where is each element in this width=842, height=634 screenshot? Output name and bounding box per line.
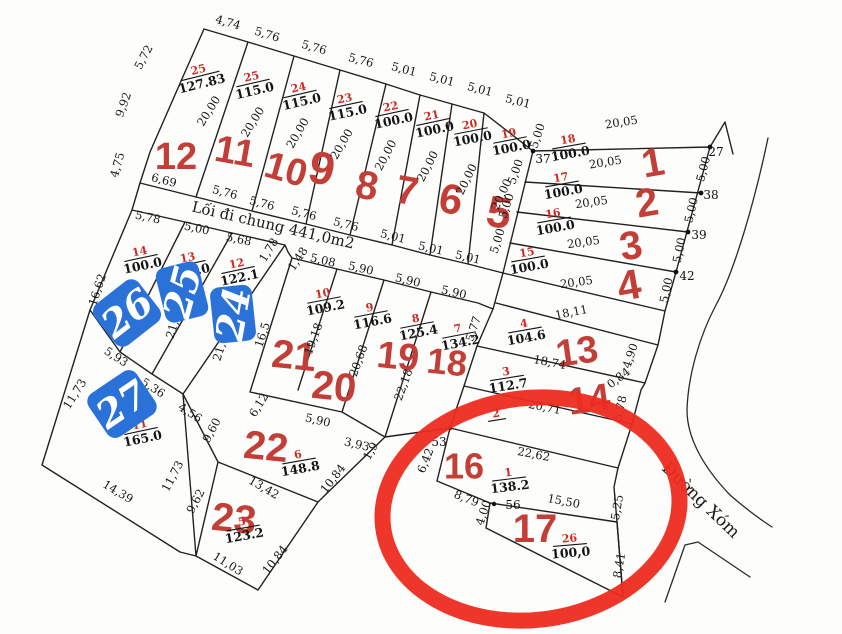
dim-label: 20,05: [604, 113, 639, 132]
dim-label: 5,01: [454, 247, 482, 266]
svg-text:26: 26: [561, 531, 578, 545]
plot-number: 4: [613, 260, 645, 310]
parcel-label: 15100.0: [506, 243, 550, 277]
dim-label: 5,00: [527, 121, 548, 150]
svg-text:100.0: 100.0: [509, 256, 550, 278]
svg-text:116.6: 116.6: [352, 310, 394, 332]
parcel-label: 14100.0: [119, 241, 163, 277]
point-marker: 27: [708, 145, 723, 159]
dim-label: 5,93: [102, 344, 131, 370]
dim-label: 5,08: [309, 250, 337, 269]
dim-label: 5,90: [440, 282, 468, 301]
dim-label: 5,00: [183, 219, 211, 238]
dim-label: 20,00: [414, 148, 441, 184]
point-marker: 39: [691, 228, 706, 242]
parcel-label: 18100.0: [547, 130, 591, 164]
dim-label: 5,90: [347, 258, 375, 277]
parcel-label: 19100.0: [488, 123, 532, 158]
svg-text:138.2: 138.2: [490, 477, 531, 497]
point-marker: 38: [703, 188, 718, 202]
dim-label: 13,42: [246, 473, 282, 502]
dim-label: 1,48: [285, 244, 311, 273]
svg-text:3: 3: [501, 365, 511, 379]
dim-label: 5,78: [134, 208, 162, 227]
svg-text:100.0: 100.0: [414, 118, 456, 141]
dim-label: 14,39: [100, 477, 135, 506]
svg-text:104.6: 104.6: [506, 327, 547, 349]
svg-text:100,0: 100,0: [550, 543, 591, 561]
parcel-label: 10109.2: [302, 284, 346, 319]
dim-label: 4,74: [214, 12, 242, 33]
dim-label: 5,68: [225, 230, 253, 249]
point-marker: 42: [679, 269, 694, 283]
plot-number: 2: [632, 179, 662, 226]
svg-text:6: 6: [293, 447, 303, 461]
plot-number: 17: [513, 507, 558, 551]
parcel-label: 23115.0: [324, 88, 368, 124]
cadastral-map-page: 12 11 10 9 8 7 6 5 1 2 3 4 13 14 16 17 1…: [0, 0, 842, 634]
parcel-label: 24115.0: [278, 77, 323, 113]
dim-label: 9,92: [112, 90, 134, 119]
dim-label: 5,00: [693, 155, 713, 183]
dim-label: 5,90: [304, 410, 332, 429]
svg-text:100.0: 100.0: [452, 127, 494, 149]
dim-label: 4,90: [620, 341, 641, 370]
dim-label: 20,00: [194, 93, 223, 128]
svg-text:115.0: 115.0: [234, 79, 276, 102]
dim-label: 8,41: [610, 551, 628, 579]
dim-label: 20,05: [588, 153, 623, 172]
dim-label: 5,00: [504, 157, 526, 186]
dim-label: 5,01: [390, 59, 418, 79]
survey-dot: [686, 230, 691, 235]
dim-label: 5,01: [428, 69, 456, 89]
parcel-label: 25127.83: [174, 58, 227, 97]
dim-label: 5,76: [300, 37, 328, 58]
parcel-label: 9116.6: [349, 297, 393, 332]
dim-label: 20,00: [238, 104, 267, 139]
dim-label: 5,00: [657, 276, 676, 304]
svg-text:115.0: 115.0: [281, 90, 323, 113]
dim-label: 20,00: [372, 137, 400, 173]
dim-label: 10,84: [259, 542, 290, 577]
svg-text:100.0: 100.0: [535, 217, 576, 239]
dim-label: 20,68: [346, 343, 370, 379]
dim-label: 9,62: [183, 487, 207, 516]
dim-label: 8,79: [452, 487, 481, 510]
svg-text:1: 1: [504, 466, 513, 480]
dim-label: 18,11: [554, 302, 589, 322]
dim-label: 20,05: [566, 233, 601, 251]
dim-label: 9,60: [199, 416, 223, 445]
dim-label: 4,56: [176, 400, 205, 426]
dim-label: 5,00: [681, 196, 700, 224]
dim-label: 5,90: [394, 270, 422, 289]
parcel-label: 12122.1: [216, 253, 260, 289]
plot-number: 16: [444, 446, 484, 487]
point-marker: 37: [535, 152, 550, 166]
parcel-label: 22100.0: [370, 96, 414, 132]
dim-label: 22,62: [516, 444, 551, 464]
dim-label: 5,25: [608, 493, 626, 521]
stamp-number: 24: [206, 284, 260, 345]
dim-label: 5,01: [466, 79, 494, 99]
dim-label: 6,12: [246, 390, 271, 419]
dim-label: 4,75: [107, 151, 128, 179]
cadastral-map: 12 11 10 9 8 7 6 5 1 2 3 4 13 14 16 17 1…: [0, 0, 842, 634]
dim-label: 5,76: [253, 24, 282, 45]
parcel-label: 20100.0: [449, 114, 493, 149]
svg-text:4: 4: [519, 316, 529, 330]
dim-label: 5,76: [211, 182, 239, 202]
dim-label: 11,73: [159, 458, 187, 494]
stamp-24: 24: [206, 284, 260, 345]
dim-label: 5,00: [670, 236, 689, 264]
dim-label: 20,05: [559, 273, 594, 291]
dim-label: 5,76: [347, 50, 375, 70]
parcel-label: 1138.2: [488, 464, 530, 497]
dim-label: 10,84: [317, 461, 348, 496]
parcel-label: 4104.6: [503, 314, 547, 348]
dim-label: 20,00: [283, 115, 312, 151]
parcel-label: 16100.0: [532, 204, 576, 238]
svg-text:100.0: 100.0: [550, 143, 591, 165]
dim-label: 5,72: [131, 43, 155, 72]
dim-label: 5,01: [417, 238, 445, 257]
parcel-label: 8125.4: [395, 308, 439, 343]
point-marker: 56: [505, 498, 520, 512]
dim-label: 5,01: [504, 91, 532, 111]
svg-text:109.2: 109.2: [305, 296, 346, 318]
svg-text:100.0: 100.0: [491, 136, 533, 158]
survey-dot: [674, 270, 679, 275]
